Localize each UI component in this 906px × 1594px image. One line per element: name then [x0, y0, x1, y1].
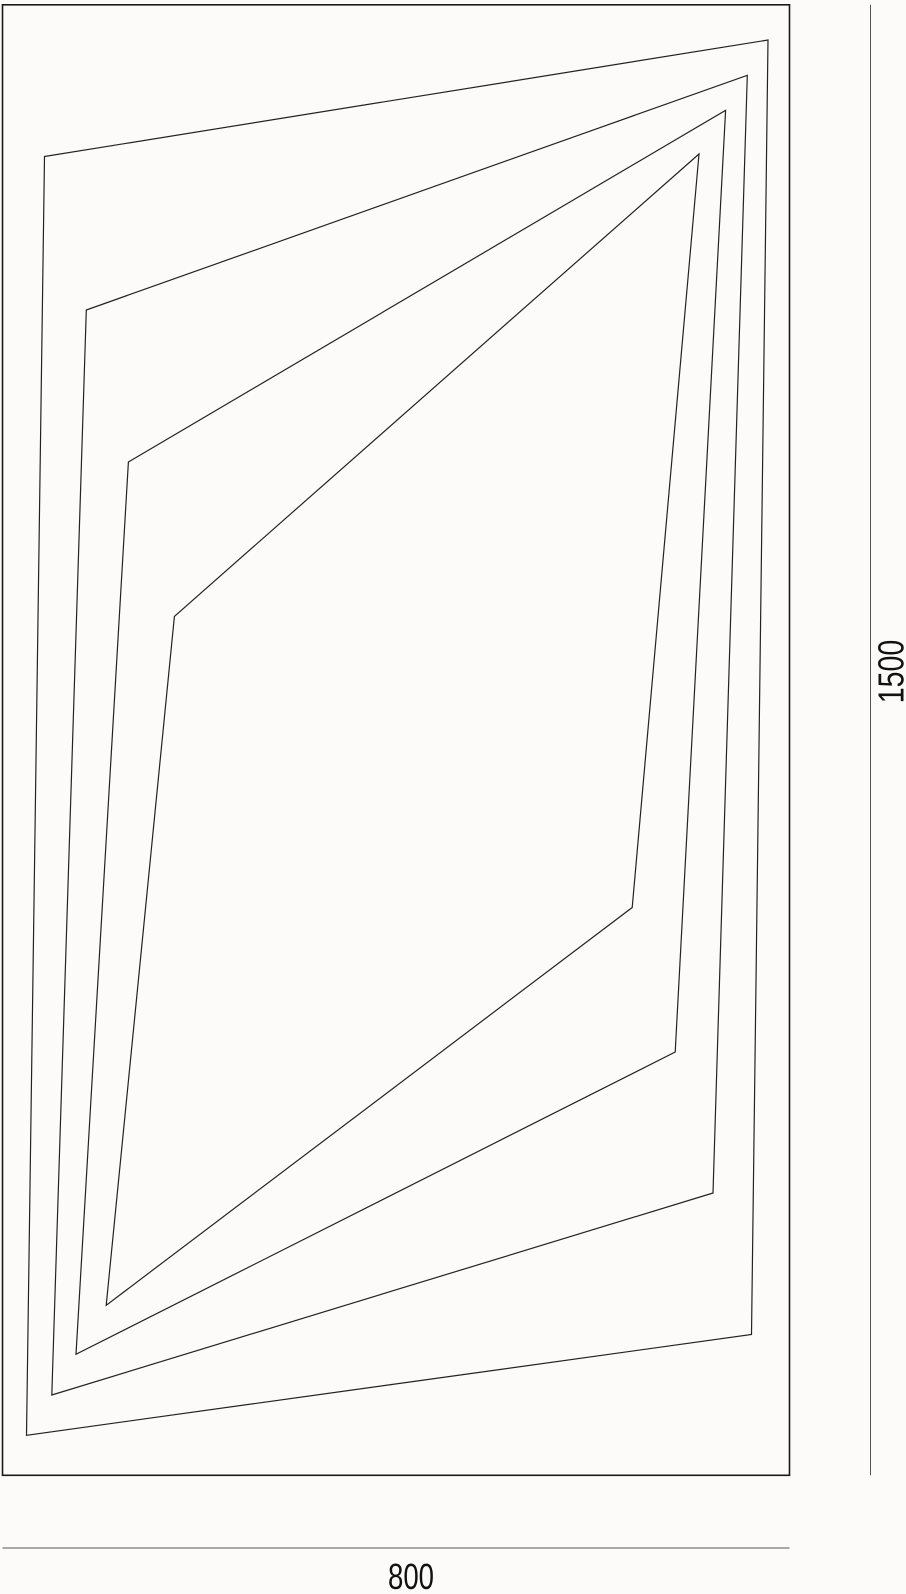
svg-text:800: 800 [388, 1556, 434, 1594]
svg-text:1500: 1500 [871, 640, 906, 704]
